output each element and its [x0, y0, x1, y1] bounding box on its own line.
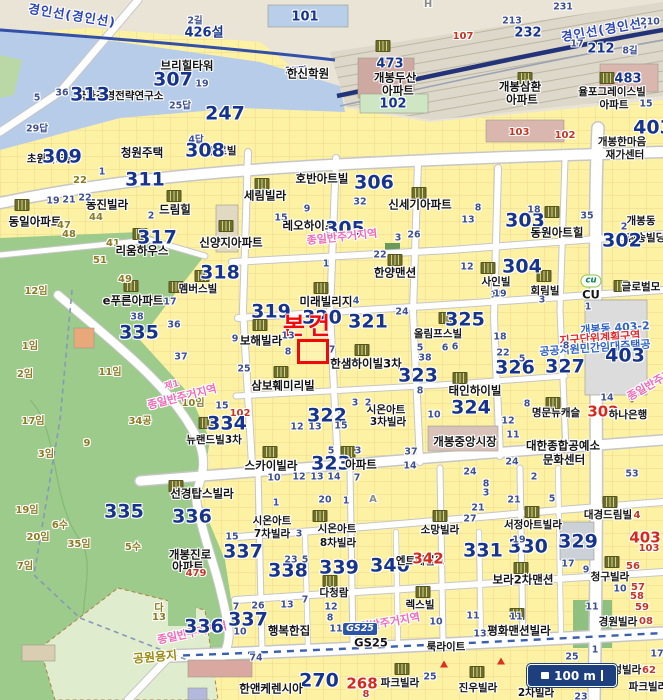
- map-base-layers: [0, 0, 663, 700]
- gs25-store-logo[interactable]: GS25: [342, 622, 378, 636]
- scale-bar: 100 m: [527, 664, 617, 687]
- map-canvas[interactable]: 경인선(경인선)경인선(경인선)24727자25답29답4답2길426설1012…: [0, 0, 663, 700]
- scalebar-label: 100 m: [554, 669, 596, 683]
- cu-logo-text: cu: [585, 276, 596, 286]
- scalebar-icon: [541, 672, 549, 679]
- cu-store-logo[interactable]: cu: [580, 275, 601, 288]
- scalebar-tick: [601, 670, 603, 681]
- subject-property-marker: [297, 339, 329, 364]
